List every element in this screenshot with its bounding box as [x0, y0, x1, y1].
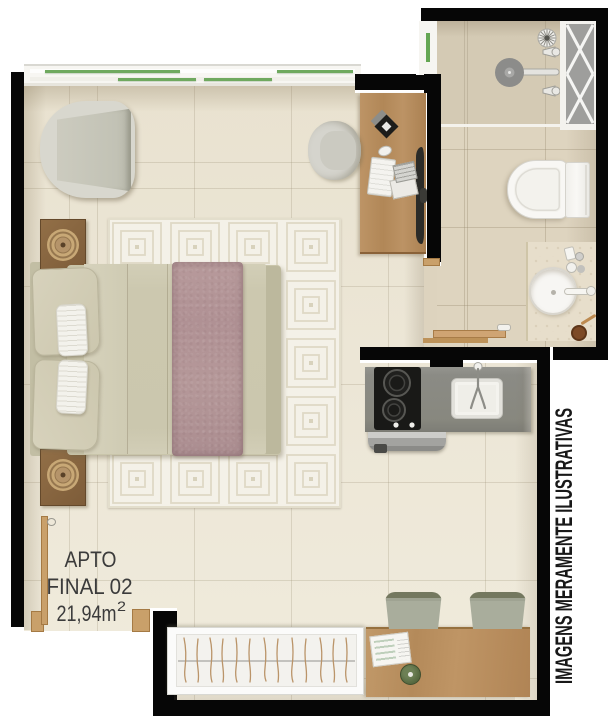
- svg-text:FINAL 02: FINAL 02: [47, 574, 133, 599]
- svg-text:21,94m: 21,94m: [57, 601, 117, 626]
- svg-text:APTO: APTO: [65, 547, 117, 572]
- svg-text:2: 2: [117, 598, 126, 614]
- svg-text:IMAGENS MERAMENTE ILUSTRATIVAS: IMAGENS MERAMENTE ILUSTRATIVAS: [551, 408, 578, 684]
